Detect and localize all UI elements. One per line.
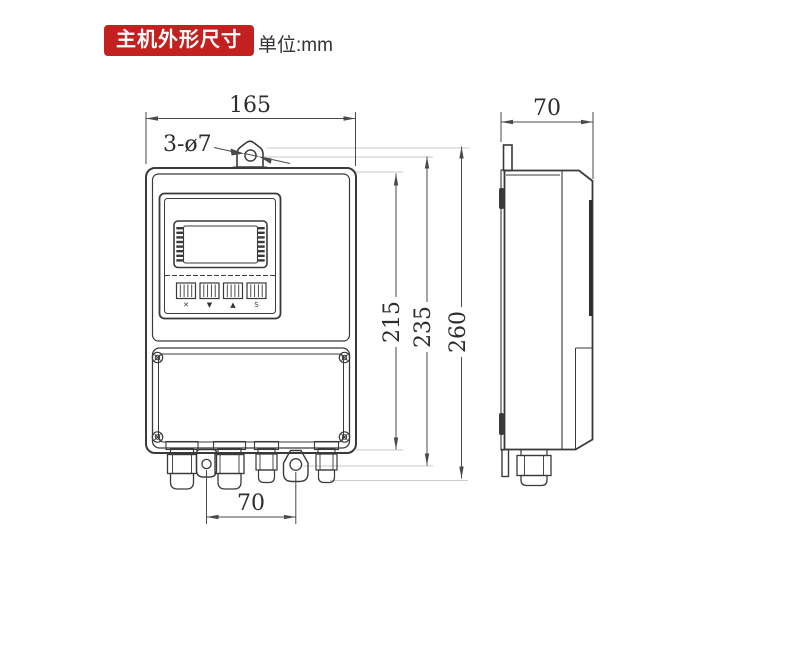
cable-gland-3 — [256, 449, 277, 483]
dim-side-depth: 70 — [501, 96, 593, 179]
outline-dimension-diagram: ✕ ▼ ▲ S — [0, 0, 790, 663]
side-bottom-lug — [502, 450, 509, 477]
wall-hook-top — [499, 188, 504, 209]
key-glyph-1: ✕ — [183, 301, 189, 309]
dim-bottom-hole-spacing: 70 — [207, 470, 296, 524]
cable-gland-1 — [168, 449, 197, 489]
dim-text-bottom-70: 70 — [237, 491, 265, 516]
dim-text-side-70: 70 — [533, 96, 561, 121]
dimension-drawing-page: 主机外形尺寸 单位:mm — [0, 0, 790, 663]
dim-hole-height: 235 — [411, 157, 436, 466]
dim-text-215: 215 — [380, 301, 405, 343]
dim-text-165: 165 — [229, 93, 271, 118]
dim-text-235: 235 — [411, 306, 436, 348]
bottom-mount-hole-1 — [202, 459, 211, 468]
side-view-drawing — [499, 145, 593, 486]
cable-gland-2 — [215, 449, 244, 489]
wall-hook-bottom — [499, 413, 504, 435]
dim-total-height: 260 — [446, 147, 471, 479]
dim-text-260: 260 — [446, 311, 471, 353]
key-glyph-4: S — [254, 301, 259, 309]
dim-text-3-o7: 3-ø7 — [163, 132, 212, 157]
side-cable-gland — [517, 450, 551, 486]
front-view-drawing: ✕ ▼ ▲ S — [146, 141, 356, 489]
bottom-mount-hole-2 — [290, 459, 302, 471]
key-glyph-2: ▼ — [207, 301, 213, 309]
dim-body-height: 215 — [380, 174, 405, 450]
key-glyph-3: ▲ — [230, 301, 236, 309]
side-top-lug — [504, 145, 513, 171]
